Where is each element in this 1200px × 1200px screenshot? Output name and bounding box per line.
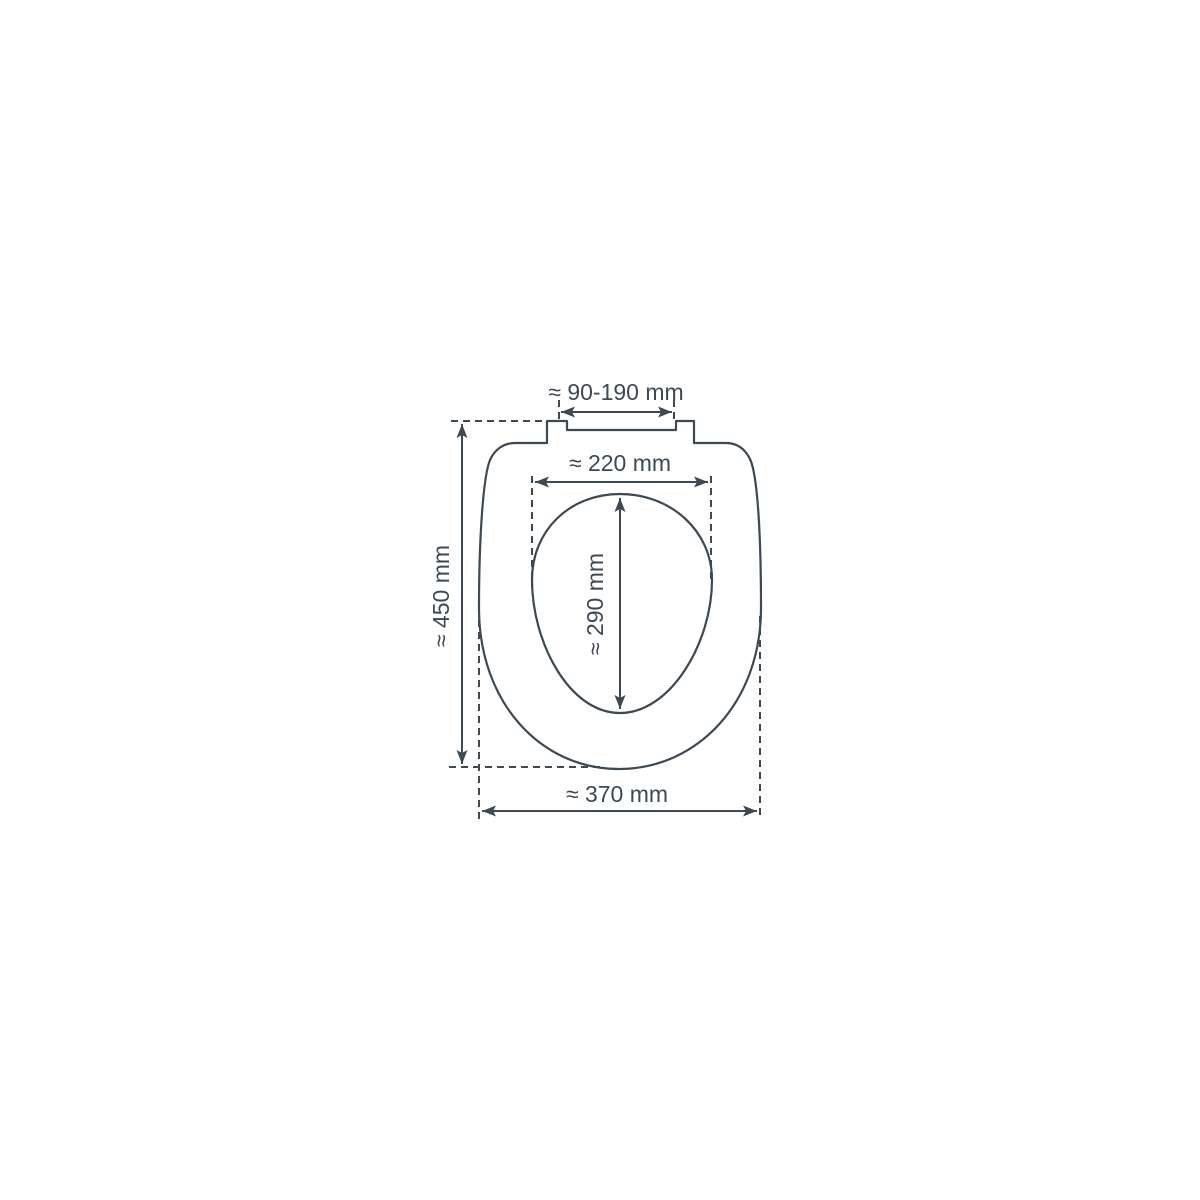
dimension-diagram: ≈ 90-190 mm ≈ 450 mm ≈ 220 mm ≈ 290 mm ≈… — [0, 0, 1200, 1200]
dimension-label-overall-width: ≈ 370 mm — [566, 781, 668, 807]
dimension-inner-length: ≈ 290 mm — [582, 498, 620, 709]
dimension-label-overall-length: ≈ 450 mm — [428, 545, 454, 647]
dimension-label-inner-length: ≈ 290 mm — [582, 553, 608, 655]
diagram-canvas: ≈ 90-190 mm ≈ 450 mm ≈ 220 mm ≈ 290 mm ≈… — [0, 0, 1200, 1200]
seat-inner-opening-outline — [532, 494, 712, 713]
dimension-label-hinge-width: ≈ 90-190 mm — [548, 379, 683, 405]
dimension-hinge-width: ≈ 90-190 mm — [548, 379, 683, 420]
dimension-label-inner-width: ≈ 220 mm — [569, 450, 671, 476]
